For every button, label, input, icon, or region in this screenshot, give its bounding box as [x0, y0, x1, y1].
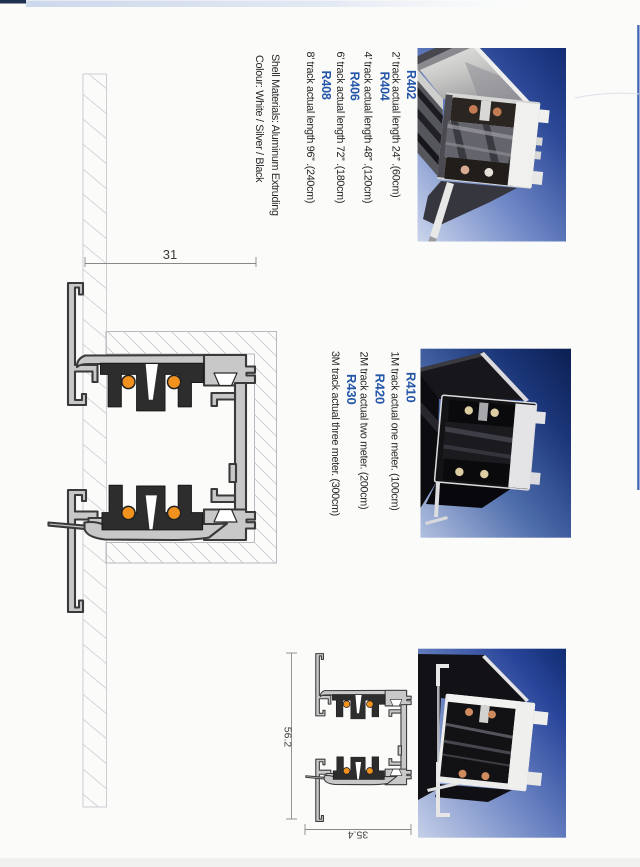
svg-text:Colour: White / Silver / Black: Colour: White / Silver / Black: [253, 55, 265, 183]
svg-text:R430: R430: [344, 374, 359, 405]
svg-text:R410: R410: [404, 372, 419, 403]
svg-text:R408: R408: [319, 71, 333, 100]
svg-text:56.2: 56.2: [282, 727, 294, 748]
svg-text:R402: R402: [404, 70, 418, 99]
svg-text:R406: R406: [348, 72, 362, 101]
svg-text:R420: R420: [373, 374, 388, 405]
svg-text:R404: R404: [378, 72, 392, 101]
svg-text:Shell Materials: Aluminum Extr: Shell Materials: Aluminum Extruding: [269, 54, 281, 216]
svg-text:31: 31: [163, 247, 177, 262]
svg-text:35.4: 35.4: [348, 829, 369, 841]
svg-text:8’ track actual length 96” .(2: 8’ track actual length 96” .(240cm): [304, 52, 316, 204]
svg-text:3M track actual three meter. (: 3M track actual three meter. (300cm): [329, 351, 341, 516]
svg-text:4’ track actual length 48” .(1: 4’ track actual length 48” .(120cm): [362, 52, 374, 204]
svg-text:1M track actual one meter. (10: 1M track actual one meter. (100cm): [389, 352, 401, 511]
svg-text:6’ track actual length 72” .(1: 6’ track actual length 72” .(180cm): [334, 52, 346, 204]
